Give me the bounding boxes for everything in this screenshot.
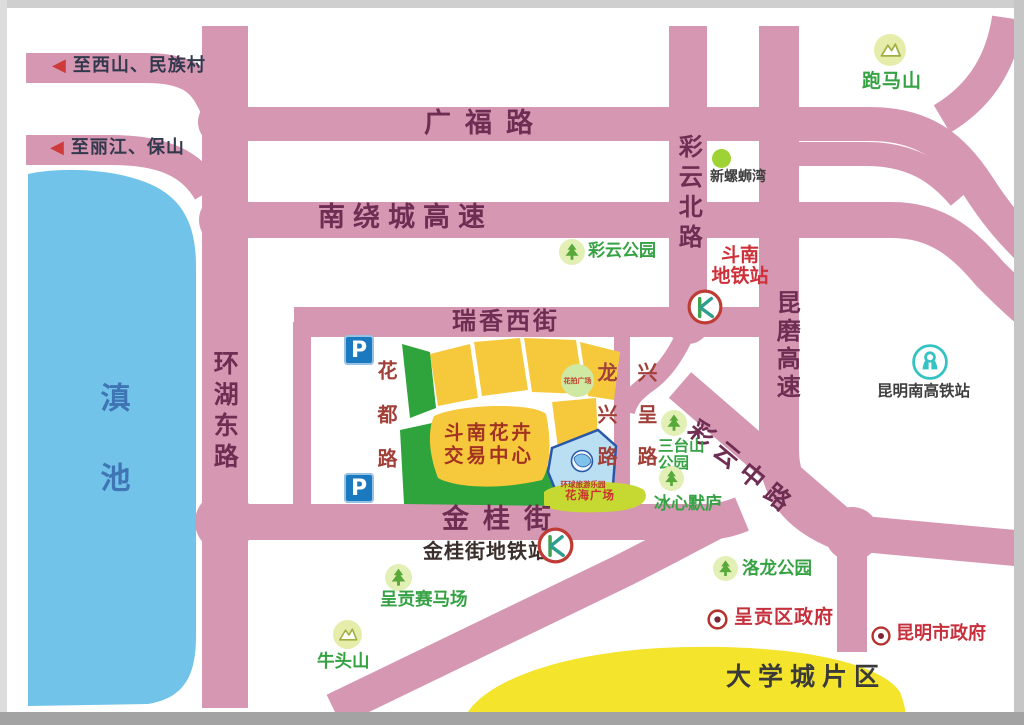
park-tree-icon xyxy=(559,239,585,269)
parking-icon: P xyxy=(344,473,374,503)
label-longxing-road: 龙兴路 xyxy=(595,362,616,488)
label-kunming-south-station: 昆明南高铁站 xyxy=(877,383,970,399)
label-jingui-metro-station: 金桂街地铁站 xyxy=(423,541,549,562)
road-nanrao-expressway xyxy=(202,220,1024,308)
label-racecourse: 呈贡赛马场 xyxy=(380,591,468,609)
huapai-plaza-badge: 花拍广场 xyxy=(561,364,594,397)
dounan-area-map: 广福路 南绕城高速 环湖东路 彩云北路 昆磨高速 瑞香西街 金桂街 彩云中路 花… xyxy=(0,0,1024,725)
park-tree-icon xyxy=(661,410,687,440)
label-nanrao-expressway: 南绕城高速 xyxy=(318,204,493,232)
exit-lijiang-baoshan: ◀至丽江、保山 xyxy=(50,139,185,158)
label-luolong-park: 洛龙公园 xyxy=(742,560,812,578)
west-arrow-icon: ◀ xyxy=(50,137,65,158)
label-university-town: 大学城片区 xyxy=(726,664,886,690)
road-topright-ramp xyxy=(942,18,1008,119)
label-dianchi-lake: 滇池 xyxy=(96,382,128,542)
government-bullseye-icon xyxy=(707,609,728,634)
exit-xishan-minzucun: ◀至西山、民族村 xyxy=(52,57,206,76)
metro-logo-icon xyxy=(687,289,723,329)
label-xinluosiwan: 新螺蛳湾 xyxy=(710,170,766,185)
label-dounan-metro-station: 斗南地铁站 xyxy=(697,245,783,286)
parking-icon: P xyxy=(344,335,374,365)
park-tree-icon xyxy=(659,466,684,495)
label-kunmo-expressway: 昆磨高速 xyxy=(773,290,798,402)
photo-edge-right xyxy=(1014,0,1024,725)
west-arrow-icon: ◀ xyxy=(52,55,67,76)
park-tree-icon xyxy=(713,556,738,585)
label-chenggong-government: 呈贡区政府 xyxy=(734,608,834,628)
photo-edge-bottom xyxy=(0,712,1024,725)
label-xingcheng-road: 兴呈路 xyxy=(635,362,656,488)
label-huadu-road: 花都路 xyxy=(375,360,396,492)
railway-logo-icon xyxy=(912,344,948,384)
label-niutoushan: 牛头山 xyxy=(317,653,370,671)
label-paomashan: 跑马山 xyxy=(862,72,922,92)
mountain-icon xyxy=(333,620,362,653)
label-bingxin-molu: 冰心默庐 xyxy=(654,496,722,514)
label-caiyun-north-road: 彩云北路 xyxy=(675,134,700,254)
label-kunming-government: 昆明市政府 xyxy=(896,625,986,644)
metro-logo-icon xyxy=(537,527,574,568)
xinluosiwan-dot-icon xyxy=(712,149,731,168)
photo-edge-left xyxy=(0,0,7,725)
label-guangfu-road: 广福路 xyxy=(424,110,547,138)
government-bullseye-icon xyxy=(871,626,891,650)
road-kunmo-ramp xyxy=(792,154,960,198)
label-dounan-flower-market: 斗南花卉交易中心 xyxy=(428,421,550,467)
label-caiyun-park: 彩云公园 xyxy=(588,243,656,261)
photo-edge-top xyxy=(0,0,1024,8)
label-ruixiang-west-street: 瑞香西街 xyxy=(452,309,560,334)
mountain-icon xyxy=(874,34,906,70)
label-huahai-plaza: 花海广场 xyxy=(565,489,615,501)
label-huanhu-east-road: 环湖东路 xyxy=(211,350,237,474)
